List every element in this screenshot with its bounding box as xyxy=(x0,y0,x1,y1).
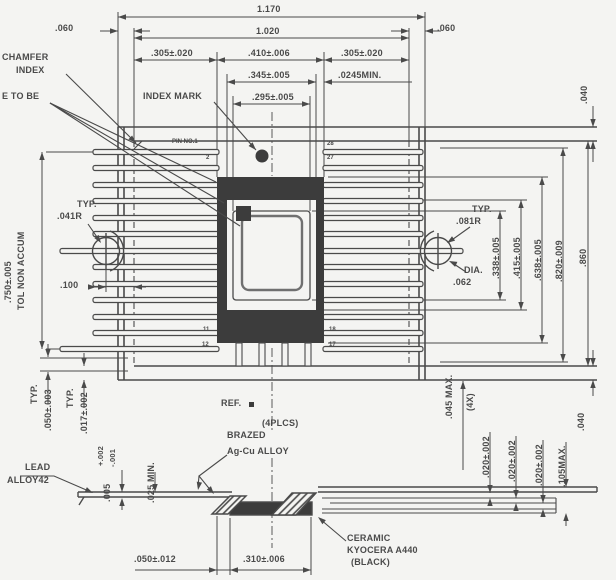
label-chamfer-line1: CHAMFER xyxy=(2,53,48,62)
pin-number-2: 2 xyxy=(206,155,209,161)
dim-body-width: 1.020 xyxy=(256,27,280,36)
lead-finger xyxy=(93,331,219,336)
label-typ-left: TYP. xyxy=(77,200,97,209)
label-lead-line2: ALLOY42 xyxy=(7,476,49,485)
label-note-fragment: E TO BE xyxy=(2,92,39,101)
die-area-rect xyxy=(242,216,302,290)
lead-finger xyxy=(323,347,423,352)
lead-finger xyxy=(323,265,423,270)
label-chamfer-line2: INDEX xyxy=(16,66,45,75)
ref-datum-square xyxy=(249,402,254,407)
dim-standoff: .025 MIN. xyxy=(147,462,156,503)
dim-edge-left: .060 xyxy=(55,24,73,33)
lead-finger xyxy=(323,232,423,237)
dim-overall-width: 1.170 xyxy=(257,5,281,14)
dim-lead-width: .017±.002 xyxy=(80,392,89,434)
label-tol-note: TOL NON ACCUM xyxy=(17,232,26,310)
lead-finger xyxy=(323,150,423,155)
label-ceramic-line1: CERAMIC xyxy=(347,534,390,543)
label-ceramic-line3: (BLACK) xyxy=(351,558,390,567)
label-ceramic-line2: KYOCERA A440 xyxy=(347,546,418,555)
label-pitch-typ: TYP. xyxy=(30,384,39,404)
index-mark-dot xyxy=(256,150,269,163)
lead-finger xyxy=(93,282,219,287)
lead-finger xyxy=(93,166,219,171)
label-brazed: BRAZED xyxy=(227,431,266,440)
dim-min-clearance: .0245MIN. xyxy=(338,71,381,80)
dim-thickness-minus: -.001 xyxy=(109,449,117,467)
label-ref: REF. xyxy=(221,399,241,408)
dim-stack-max: .105MAX. xyxy=(558,445,567,487)
pin-number-28: 28 xyxy=(327,141,334,147)
lead-finger xyxy=(323,166,423,171)
dim-body-height: .820±.009 xyxy=(555,240,564,282)
dim-pad-width: .310±.006 xyxy=(243,555,285,564)
dim-seg-right: .305±.020 xyxy=(341,49,383,58)
lead-finger xyxy=(323,315,423,320)
lead-finger xyxy=(323,249,463,254)
pin-number-11: 11 xyxy=(203,327,209,333)
dim-seal-height: .638±.005 xyxy=(534,239,543,281)
cavity-inner-rect xyxy=(233,211,310,300)
dim-thickness-plus: +.002 xyxy=(97,446,105,466)
dim-seg-mid: .410±.006 xyxy=(248,49,290,58)
dim-cavity-inner-h: .338±.005 xyxy=(492,237,501,279)
label-typ-right: TYP. xyxy=(472,205,492,214)
die-pad xyxy=(236,206,251,221)
lead-finger xyxy=(60,347,219,352)
drawing-linework xyxy=(0,0,616,580)
dim-gap-bottom: .040 xyxy=(577,413,586,431)
dim-edge-right: .060 xyxy=(437,24,455,33)
dim-cavity-outer-w: .345±.005 xyxy=(248,71,290,80)
dim-lead-pitch: .050±.003 xyxy=(44,389,53,431)
lead-finger xyxy=(93,315,219,320)
lead-finger xyxy=(93,183,219,188)
lead-finger xyxy=(60,249,219,254)
dim-rail-offset: .100 xyxy=(60,281,78,290)
pin-number-18: 18 xyxy=(329,327,336,333)
dim-radius-left: .041R xyxy=(57,212,82,221)
dim-tip-max: .045 MAX. xyxy=(445,375,454,419)
dim-gap-top: .040 xyxy=(580,86,589,104)
dim-cavity-inner-w: .295±.005 xyxy=(252,93,294,102)
lead-finger xyxy=(323,199,423,204)
label-dia: DIA. xyxy=(464,266,483,275)
leader-lines xyxy=(20,74,470,541)
lead-finger xyxy=(323,183,423,188)
label-pin-no1: PIN NO.1 xyxy=(172,139,198,145)
lead-finger xyxy=(323,216,423,221)
label-tip-qty: (4X) xyxy=(466,393,475,411)
lead-finger xyxy=(93,265,219,270)
dim-lead-thickness: .005 xyxy=(103,484,112,502)
dim-braze-length: .050±.012 xyxy=(134,555,176,564)
lead-finger xyxy=(93,199,219,204)
dim-hole-dia: .062 xyxy=(453,278,471,287)
package-engineering-drawing: .060 1.170 1.020 .060 .305±.020 .410±.00… xyxy=(0,0,616,580)
dim-seg-left: .305±.020 xyxy=(151,49,193,58)
dim-radius-right: .081R xyxy=(456,217,481,226)
dim-layer2: .020±.002 xyxy=(508,440,517,482)
lead-finger xyxy=(93,298,219,303)
label-braze-alloy: Ag-Cu ALLOY xyxy=(227,447,289,456)
label-places: (4PLCS) xyxy=(262,419,298,428)
pin-number-27: 27 xyxy=(327,155,334,161)
dim-lead-span: .750±.005 xyxy=(4,261,13,303)
lead-finger xyxy=(323,331,423,336)
label-width-typ: TYP. xyxy=(66,388,75,408)
pin-number-17: 17 xyxy=(329,342,336,348)
dim-overall-height: .860 xyxy=(579,249,588,267)
label-index-mark: INDEX MARK xyxy=(143,92,202,101)
lead-finger xyxy=(323,282,423,287)
cavity-seal-ring xyxy=(217,150,324,408)
pin-number-12: 12 xyxy=(202,342,209,348)
label-lead-line1: LEAD xyxy=(25,463,50,472)
lead-finger xyxy=(323,298,423,303)
dim-layer3: .020±.002 xyxy=(535,444,544,486)
lead-finger xyxy=(93,216,219,221)
dim-layer1: .020±.002 xyxy=(482,436,491,478)
dim-cavity-outer-h: .415±.005 xyxy=(513,237,522,279)
